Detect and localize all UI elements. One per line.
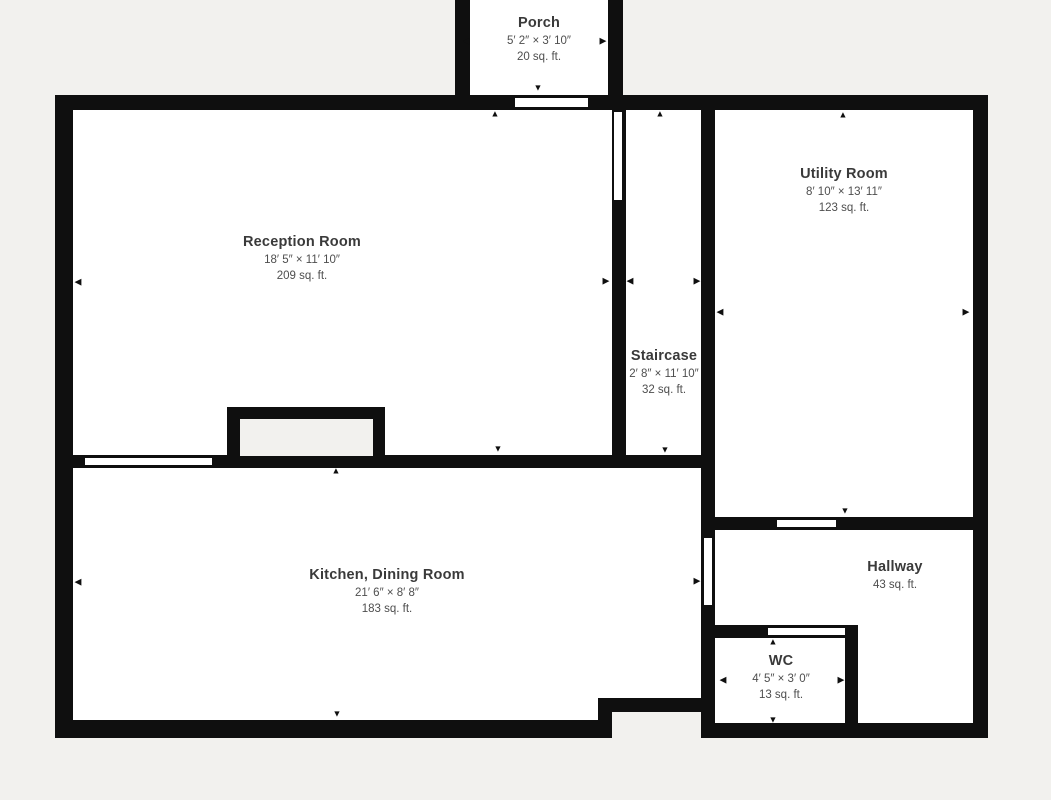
room-name: Hallway — [867, 559, 922, 575]
kitchen-label: Kitchen, Dining Room 21′ 6″ × 8′ 8″ 183 … — [309, 567, 464, 615]
utility-arrow-up-icon: ▲ — [839, 111, 848, 120]
reception-arrow-down-icon: ▼ — [494, 445, 503, 454]
room-area-text: 20 sq. ft. — [507, 51, 571, 63]
reception-arrow-right-icon: ▶ — [603, 277, 610, 286]
reception-arrow-left-icon: ◀ — [75, 278, 82, 287]
reception-arrow-up-icon: ▲ — [491, 110, 500, 119]
room-name: Porch — [507, 15, 571, 31]
room-area-text: 43 sq. ft. — [867, 579, 922, 591]
staircase-arrow-left-icon: ◀ — [627, 277, 634, 286]
room-name: Reception Room — [243, 234, 361, 250]
staircase-arrow-up-icon: ▲ — [656, 110, 665, 119]
kitchen-arrow-up-icon: ▲ — [332, 467, 341, 476]
utility-hallway-wall — [701, 517, 988, 530]
staircase-arrow-right-icon: ▶ — [694, 277, 701, 286]
porch-left-wall — [455, 0, 470, 110]
mid-vertical-wall — [701, 110, 715, 738]
porch-door-opening — [515, 96, 588, 109]
chimney-recess — [240, 419, 373, 456]
room-dimensions: 2′ 8″ × 11′ 10″ — [629, 368, 698, 380]
room-dimensions: 5′ 2″ × 3′ 10″ — [507, 35, 571, 47]
porch-right-wall — [608, 0, 623, 110]
staircase-room-area — [626, 110, 701, 455]
utility-arrow-left-icon: ◀ — [717, 308, 724, 317]
kitchen-arrow-right-icon: ▶ — [694, 577, 701, 586]
room-dimensions: 8′ 10″ × 13′ 11″ — [800, 186, 888, 198]
wc-label: WC 4′ 5″ × 3′ 0″ 13 sq. ft. — [752, 653, 810, 701]
wc-door-opening — [768, 626, 845, 637]
room-area-text: 123 sq. ft. — [800, 202, 888, 214]
room-name: Kitchen, Dining Room — [309, 567, 464, 583]
porch-label: Porch 5′ 2″ × 3′ 10″ 20 sq. ft. — [507, 15, 571, 63]
kitchen-hallway-door-opening — [702, 538, 714, 605]
left-wall — [55, 95, 73, 738]
room-dimensions: 4′ 5″ × 3′ 0″ — [752, 673, 810, 685]
reception-window — [612, 112, 624, 200]
kitchen-room-area — [612, 468, 701, 698]
floor-plan: ◀ ▶ ▼ ▲ ◀ ▶ ▼ ▲ ◀ ▶ ▼ ▲ ◀ ▶ ▼ ▲ ◀ ▶ ▼ ▲ … — [0, 0, 1051, 800]
bottom-step-horizontal — [598, 698, 715, 712]
reception-room-area — [73, 110, 612, 455]
room-area-text: 183 sq. ft. — [309, 603, 464, 615]
room-dimensions: 18′ 5″ × 11′ 10″ — [243, 254, 361, 266]
room-area-text: 209 sq. ft. — [243, 270, 361, 282]
wc-right-wall — [845, 625, 858, 738]
utility-label: Utility Room 8′ 10″ × 13′ 11″ 123 sq. ft… — [800, 166, 888, 214]
staircase-label: Staircase 2′ 8″ × 11′ 10″ 32 sq. ft. — [629, 348, 698, 396]
right-wall — [973, 95, 988, 738]
reception-label: Reception Room 18′ 5″ × 11′ 10″ 209 sq. … — [243, 234, 361, 282]
utility-hallway-door-opening — [777, 518, 836, 529]
porch-arrow-left-icon: ◀ — [463, 37, 470, 46]
kitchen-window — [85, 456, 212, 467]
bottom-wall-left — [55, 720, 612, 738]
wc-arrow-down-icon: ▼ — [769, 716, 778, 725]
room-name: WC — [752, 653, 810, 669]
hallway-label: Hallway 43 sq. ft. — [867, 559, 922, 591]
room-name: Utility Room — [800, 166, 888, 182]
kitchen-arrow-down-icon: ▼ — [333, 710, 342, 719]
wc-arrow-right-icon: ▶ — [838, 676, 845, 685]
room-dimensions: 21′ 6″ × 8′ 8″ — [309, 587, 464, 599]
utility-arrow-right-icon: ▶ — [963, 308, 970, 317]
room-name: Staircase — [629, 348, 698, 364]
staircase-arrow-down-icon: ▼ — [661, 446, 670, 455]
wc-arrow-left-icon: ◀ — [720, 676, 727, 685]
room-area-text: 32 sq. ft. — [629, 384, 698, 396]
porch-arrow-right-icon: ▶ — [600, 37, 607, 46]
utility-arrow-down-icon: ▼ — [841, 507, 850, 516]
room-area-text: 13 sq. ft. — [752, 689, 810, 701]
porch-arrow-down-icon: ▼ — [534, 84, 543, 93]
wc-arrow-up-icon: ▲ — [769, 638, 778, 647]
kitchen-arrow-left-icon: ◀ — [75, 578, 82, 587]
